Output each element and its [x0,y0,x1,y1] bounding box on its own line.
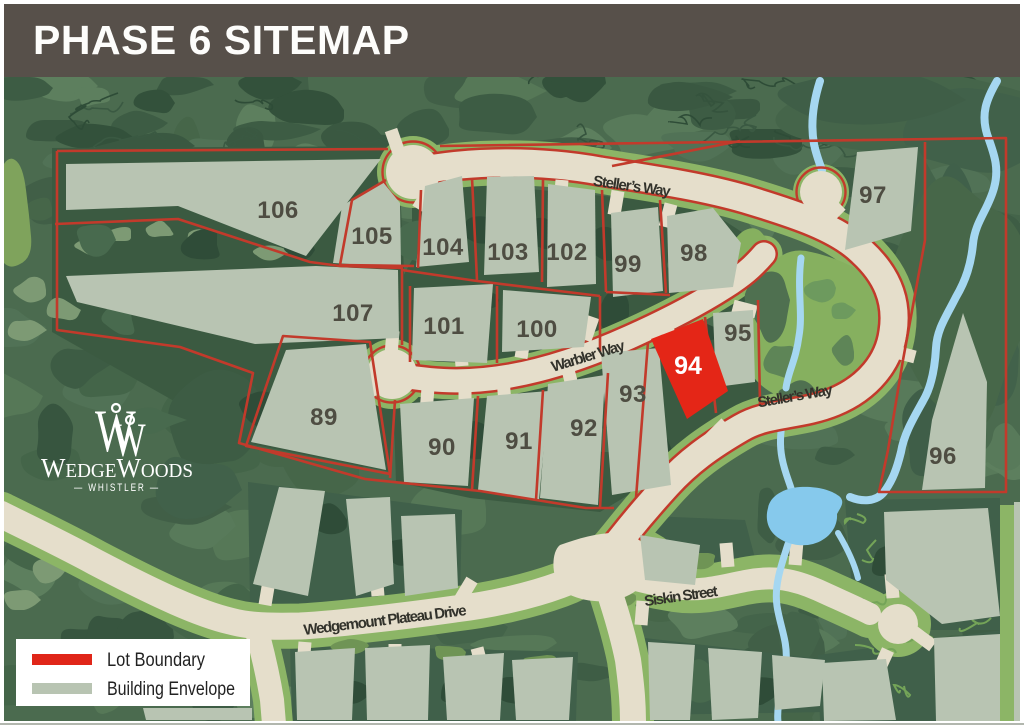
svg-text:97: 97 [859,182,887,209]
svg-text:107: 107 [332,300,374,327]
svg-text:98: 98 [680,240,708,267]
svg-text:102: 102 [546,239,588,266]
svg-text:Lot Boundary: Lot Boundary [107,650,205,671]
svg-text:105: 105 [351,223,393,250]
svg-text:95: 95 [724,320,752,347]
svg-text:104: 104 [422,234,464,261]
svg-text:106: 106 [257,197,299,224]
svg-text:92: 92 [570,415,598,442]
svg-text:93: 93 [619,381,647,408]
svg-text:— WHISTLER —: — WHISTLER — [74,482,160,494]
svg-text:99: 99 [614,251,642,278]
svg-text:103: 103 [487,239,529,266]
svg-text:89: 89 [310,404,338,431]
svg-text:90: 90 [428,434,456,461]
svg-text:96: 96 [929,443,957,470]
svg-text:100: 100 [516,316,558,343]
svg-text:94: 94 [674,352,702,380]
svg-text:91: 91 [505,428,533,455]
svg-text:Building Envelope: Building Envelope [107,679,235,700]
svg-text:101: 101 [423,313,465,340]
